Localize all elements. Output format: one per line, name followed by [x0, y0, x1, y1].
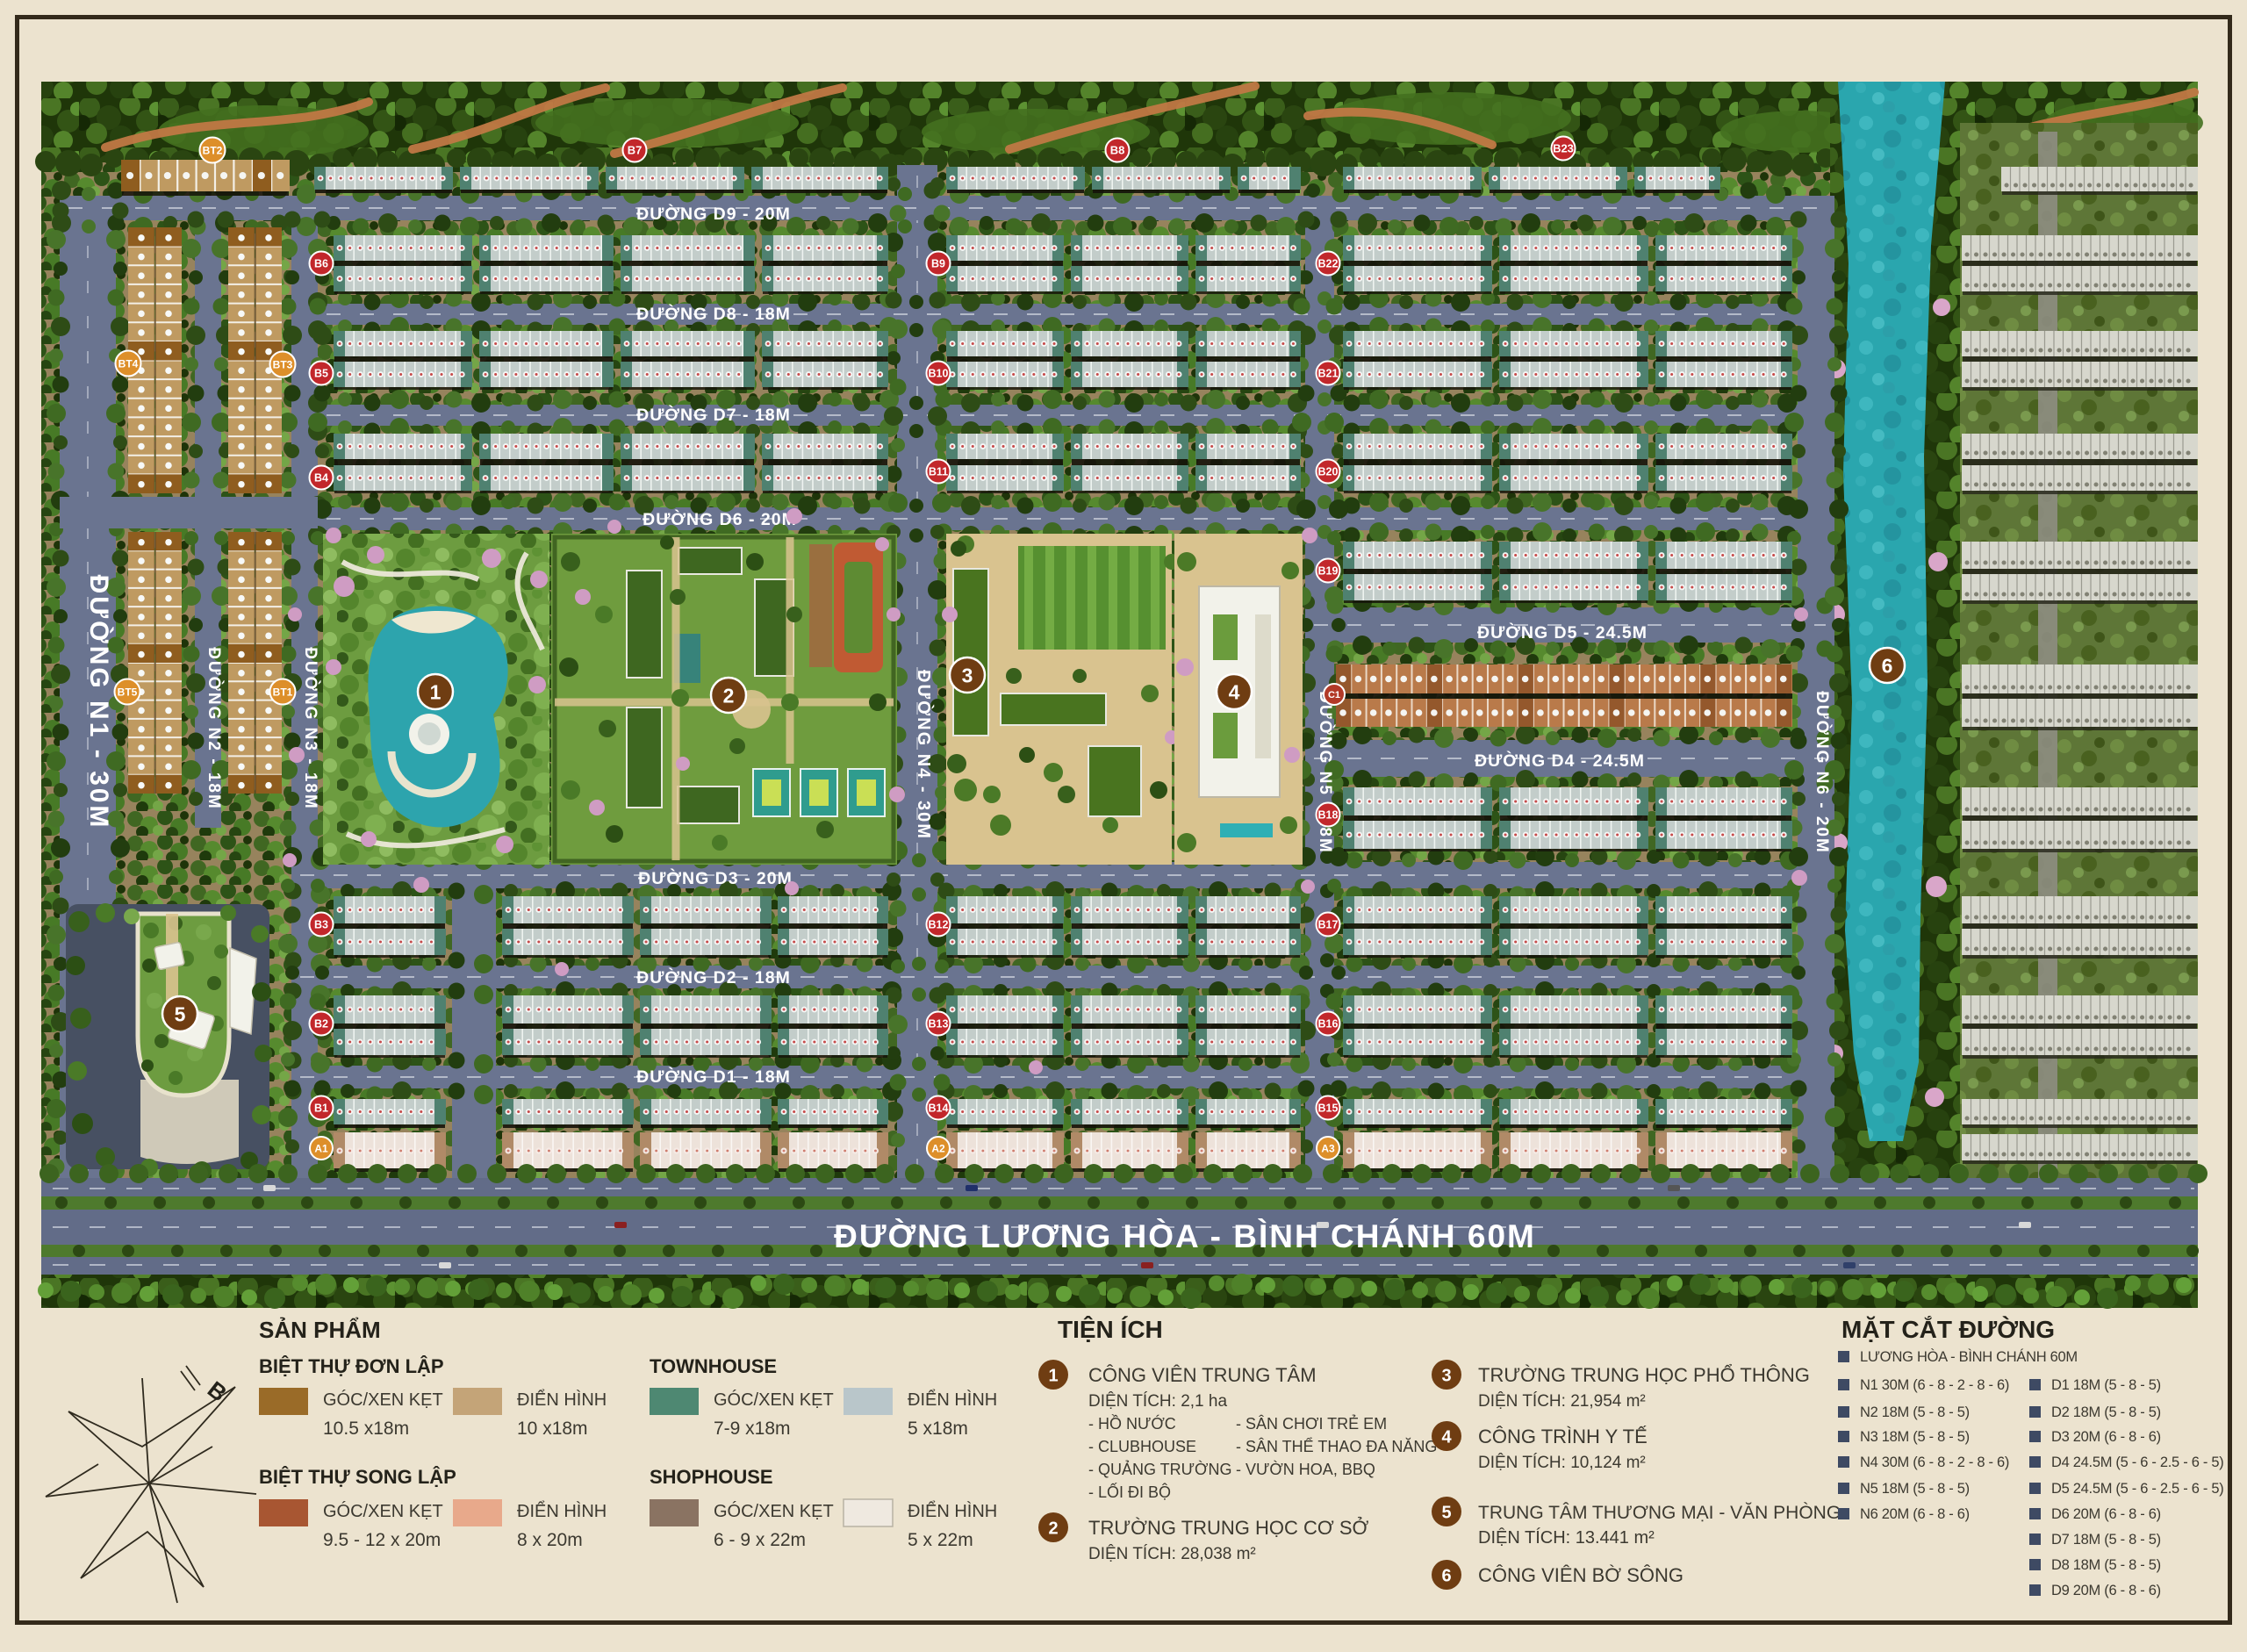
svg-text:B14: B14 — [929, 1103, 949, 1115]
svg-text:B1: B1 — [314, 1103, 328, 1115]
svg-text:- LỐI ĐI BỘ: - LỐI ĐI BỘ — [1088, 1483, 1171, 1501]
svg-text:A3: A3 — [1321, 1142, 1335, 1154]
svg-text:B22: B22 — [1318, 258, 1339, 270]
svg-text:ĐƯỜNG D9 - 20M: ĐƯỜNG D9 - 20M — [636, 203, 791, 224]
svg-text:SHOPHOUSE: SHOPHOUSE — [650, 1466, 773, 1488]
svg-text:B4: B4 — [314, 472, 328, 485]
svg-text:ĐƯỜNG D5 - 24.5M: ĐƯỜNG D5 - 24.5M — [1477, 621, 1648, 643]
svg-text:A2: A2 — [931, 1142, 945, 1154]
svg-text:10 x18m: 10 x18m — [517, 1419, 588, 1439]
svg-text:B7: B7 — [628, 144, 643, 157]
svg-text:- HỒ NƯỚC: - HỒ NƯỚC — [1088, 1414, 1176, 1433]
svg-text:D7 18M (5 - 8 - 5): D7 18M (5 - 8 - 5) — [2051, 1532, 2161, 1548]
svg-text:9.5 - 12 x 20m: 9.5 - 12 x 20m — [323, 1530, 441, 1550]
svg-text:N4 30M (6 - 8 - 2 - 8 - 6): N4 30M (6 - 8 - 2 - 8 - 6) — [1860, 1454, 2009, 1470]
svg-text:SẢN PHẨM: SẢN PHẨM — [259, 1317, 381, 1343]
svg-text:BT4: BT4 — [118, 357, 139, 370]
svg-text:DIỆN TÍCH: 2,1 ha: DIỆN TÍCH: 2,1 ha — [1088, 1391, 1227, 1411]
svg-text:BIỆT THỰ ĐƠN LẬP: BIỆT THỰ ĐƠN LẬP — [259, 1355, 444, 1377]
svg-text:ĐIỂN HÌNH: ĐIỂN HÌNH — [908, 1390, 997, 1410]
svg-text:ĐƯỜNG N4 - 30M: ĐƯỜNG N4 - 30M — [914, 670, 935, 840]
svg-text:B8: B8 — [1110, 144, 1125, 157]
svg-text:DIỆN TÍCH: 13.441 m²: DIỆN TÍCH: 13.441 m² — [1478, 1527, 1655, 1548]
svg-text:8 x 20m: 8 x 20m — [517, 1530, 583, 1550]
svg-text:ĐIỂN HÌNH: ĐIỂN HÌNH — [908, 1501, 997, 1521]
svg-text:5: 5 — [1441, 1504, 1451, 1523]
svg-text:N5 18M (5 - 8 - 5): N5 18M (5 - 8 - 5) — [1860, 1481, 1970, 1497]
svg-text:3: 3 — [1441, 1367, 1451, 1386]
svg-text:CÔNG VIÊN BỜ SÔNG: CÔNG VIÊN BỜ SÔNG — [1478, 1564, 1683, 1586]
svg-text:BT5: BT5 — [118, 686, 138, 698]
svg-text:BT1: BT1 — [273, 686, 293, 698]
svg-text:B21: B21 — [1318, 368, 1339, 380]
svg-text:B10: B10 — [929, 368, 949, 380]
svg-text:5 x 22m: 5 x 22m — [908, 1530, 973, 1550]
svg-text:3: 3 — [962, 664, 973, 686]
svg-text:TRƯỜNG TRUNG HỌC CƠ SỞ: TRƯỜNG TRUNG HỌC CƠ SỞ — [1088, 1517, 1369, 1539]
svg-text:B16: B16 — [1318, 1018, 1339, 1031]
svg-text:TOWNHOUSE: TOWNHOUSE — [650, 1355, 777, 1377]
svg-text:2: 2 — [723, 684, 735, 707]
svg-text:CÔNG TRÌNH Y TẾ: CÔNG TRÌNH Y TẾ — [1478, 1426, 1648, 1447]
svg-text:B20: B20 — [1318, 466, 1339, 478]
svg-text:D9 20M (6 - 8 - 6): D9 20M (6 - 8 - 6) — [2051, 1583, 2161, 1598]
svg-text:B18: B18 — [1318, 809, 1339, 822]
svg-text:5 x18m: 5 x18m — [908, 1419, 968, 1439]
svg-text:1: 1 — [430, 680, 442, 703]
svg-text:- CLUBHOUSE: - CLUBHOUSE — [1088, 1438, 1196, 1455]
svg-text:5: 5 — [175, 1002, 186, 1025]
svg-text:GÓC/XEN KẸT: GÓC/XEN KẸT — [323, 1501, 443, 1521]
svg-text:10.5 x18m: 10.5 x18m — [323, 1419, 409, 1439]
svg-text:- SÂN CHƠI TRẺ EM: - SÂN CHƠI TRẺ EM — [1236, 1414, 1387, 1433]
svg-text:ĐƯỜNG N6 - 20M: ĐƯỜNG N6 - 20M — [1813, 691, 1832, 854]
svg-text:A1: A1 — [314, 1142, 328, 1154]
svg-text:B13: B13 — [929, 1018, 949, 1031]
svg-text:B17: B17 — [1318, 919, 1339, 931]
svg-text:N3 18M (5 - 8 - 5): N3 18M (5 - 8 - 5) — [1860, 1429, 1970, 1445]
svg-text:BT3: BT3 — [273, 358, 293, 370]
svg-text:ĐƯỜNG LƯƠNG HÒA - BÌNH CHÁNH 6: ĐƯỜNG LƯƠNG HÒA - BÌNH CHÁNH 60M — [834, 1217, 1536, 1254]
svg-text:GÓC/XEN KẸT: GÓC/XEN KẸT — [714, 1501, 834, 1521]
svg-text:ĐƯỜNG N3 - 18M: ĐƯỜNG N3 - 18M — [301, 647, 320, 810]
svg-text:6: 6 — [1441, 1567, 1451, 1586]
svg-text:ĐƯỜNG N2 - 18M: ĐƯỜNG N2 - 18M — [205, 647, 224, 810]
svg-text:ĐIỂN HÌNH: ĐIỂN HÌNH — [517, 1501, 607, 1521]
svg-text:2: 2 — [1048, 1519, 1058, 1539]
svg-text:DIỆN TÍCH: 21,954 m²: DIỆN TÍCH: 21,954 m² — [1478, 1391, 1646, 1411]
svg-text:LƯƠNG HÒA - BÌNH CHÁNH 60M: LƯƠNG HÒA - BÌNH CHÁNH 60M — [1860, 1348, 2078, 1365]
svg-text:ĐƯỜNG D1 - 18M: ĐƯỜNG D1 - 18M — [636, 1066, 791, 1087]
svg-text:ĐIỂN HÌNH: ĐIỂN HÌNH — [517, 1390, 607, 1410]
svg-text:MẶT CẮT ĐƯỜNG: MẶT CẮT ĐƯỜNG — [1841, 1316, 2055, 1343]
svg-text:D3 20M (6 - 8 - 6): D3 20M (6 - 8 - 6) — [2051, 1429, 2161, 1445]
svg-text:B11: B11 — [929, 466, 948, 478]
svg-text:BIỆT THỰ SONG LẬP: BIỆT THỰ SONG LẬP — [259, 1466, 456, 1488]
svg-text:4: 4 — [1229, 680, 1240, 703]
svg-text:D6 20M (6 - 8 - 6): D6 20M (6 - 8 - 6) — [2051, 1506, 2161, 1522]
svg-text:N1 30M (6 - 8 - 2 - 8 - 6): N1 30M (6 - 8 - 2 - 8 - 6) — [1860, 1377, 2009, 1393]
svg-text:GÓC/XEN KẸT: GÓC/XEN KẸT — [323, 1390, 443, 1410]
svg-text:D8 18M (5 - 8 - 5): D8 18M (5 - 8 - 5) — [2051, 1557, 2161, 1573]
svg-text:C1: C1 — [1328, 690, 1340, 700]
svg-text:B6: B6 — [314, 258, 328, 270]
svg-text:ĐƯỜNG D2 - 18M: ĐƯỜNG D2 - 18M — [636, 966, 791, 988]
svg-text:B3: B3 — [314, 919, 328, 931]
svg-text:TIỆN ÍCH: TIỆN ÍCH — [1058, 1316, 1163, 1343]
svg-text:D2 18M (5 - 8 - 5): D2 18M (5 - 8 - 5) — [2051, 1404, 2161, 1420]
svg-text:ĐƯỜNG D8 - 18M: ĐƯỜNG D8 - 18M — [636, 303, 791, 324]
svg-text:6: 6 — [1882, 654, 1893, 677]
svg-text:N6 20M (6 - 8 - 6): N6 20M (6 - 8 - 6) — [1860, 1506, 1970, 1522]
svg-text:B19: B19 — [1318, 565, 1339, 578]
svg-text:ĐƯỜNG N5 - 18M: ĐƯỜNG N5 - 18M — [1316, 691, 1335, 854]
svg-text:- SÂN THỂ THAO ĐA NĂNG: - SÂN THỂ THAO ĐA NĂNG — [1236, 1437, 1437, 1455]
svg-text:7-9 x18m: 7-9 x18m — [714, 1419, 791, 1439]
svg-text:B5: B5 — [314, 368, 328, 380]
svg-text:6 - 9 x 22m: 6 - 9 x 22m — [714, 1530, 806, 1550]
svg-text:D4 24.5M (5 - 6 - 2.5 - 6 - 5): D4 24.5M (5 - 6 - 2.5 - 6 - 5) — [2051, 1454, 2223, 1470]
svg-text:B15: B15 — [1318, 1103, 1339, 1115]
svg-text:TRƯỜNG TRUNG HỌC PHỔ THÔNG: TRƯỜNG TRUNG HỌC PHỔ THÔNG — [1478, 1364, 1810, 1386]
svg-text:B2: B2 — [314, 1018, 328, 1031]
svg-text:ĐƯỜNG D3 - 20M: ĐƯỜNG D3 - 20M — [638, 867, 793, 888]
svg-text:1: 1 — [1048, 1367, 1058, 1386]
svg-text:CÔNG VIÊN TRUNG TÂM: CÔNG VIÊN TRUNG TÂM — [1088, 1364, 1317, 1386]
svg-text:B9: B9 — [931, 258, 945, 270]
svg-text:B12: B12 — [929, 919, 949, 931]
svg-text:BT2: BT2 — [203, 144, 223, 156]
svg-text:- QUẢNG TRƯỜNG: - QUẢNG TRƯỜNG — [1088, 1460, 1231, 1478]
svg-text:D5 24.5M (5 - 6 - 2.5 - 6 - 5): D5 24.5M (5 - 6 - 2.5 - 6 - 5) — [2051, 1481, 2223, 1497]
svg-text:D1 18M (5 - 8 - 5): D1 18M (5 - 8 - 5) — [2051, 1377, 2161, 1393]
svg-text:DIỆN TÍCH: 28,038 m²: DIỆN TÍCH: 28,038 m² — [1088, 1544, 1256, 1563]
svg-text:ĐƯỜNG D6 - 20M: ĐƯỜNG D6 - 20M — [643, 508, 797, 529]
svg-text:ĐƯỜNG N1 - 30M: ĐƯỜNG N1 - 30M — [84, 575, 114, 830]
svg-text:- VƯỜN HOA, BBQ: - VƯỜN HOA, BBQ — [1236, 1460, 1375, 1478]
svg-text:N2 18M (5 - 8 - 5): N2 18M (5 - 8 - 5) — [1860, 1404, 1970, 1420]
svg-text:B23: B23 — [1553, 142, 1574, 155]
svg-text:4: 4 — [1441, 1428, 1452, 1447]
svg-text:ĐƯỜNG D4 - 24.5M: ĐƯỜNG D4 - 24.5M — [1475, 750, 1645, 771]
svg-text:TRUNG TÂM THƯƠNG MẠI - VĂN PHÒ: TRUNG TÂM THƯƠNG MẠI - VĂN PHÒNG — [1478, 1503, 1841, 1523]
svg-text:DIỆN TÍCH: 10,124 m²: DIỆN TÍCH: 10,124 m² — [1478, 1453, 1646, 1472]
svg-text:GÓC/XEN KẸT: GÓC/XEN KẸT — [714, 1390, 834, 1410]
svg-text:ĐƯỜNG D7 - 18M: ĐƯỜNG D7 - 18M — [636, 404, 791, 425]
